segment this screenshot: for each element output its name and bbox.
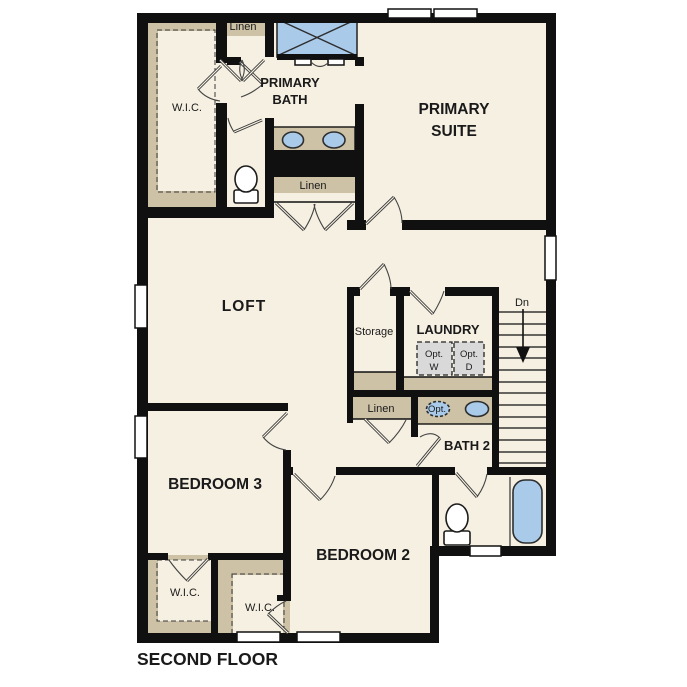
room-label-wic-bed3: W.I.C. xyxy=(170,587,200,599)
optional-sink-label: Opt. xyxy=(428,404,446,415)
room-label-bath2: BATH 2 xyxy=(444,438,490,453)
room-label-wic-bed2: W.I.C. xyxy=(245,602,275,614)
room-label: SUITE xyxy=(431,123,477,140)
window xyxy=(135,285,147,328)
page-title: SECOND FLOOR xyxy=(137,649,278,669)
window xyxy=(388,9,431,18)
window xyxy=(470,546,501,556)
room-label: PRIMARY xyxy=(419,101,491,118)
room-label-storage: Storage xyxy=(355,326,394,338)
window xyxy=(297,632,340,642)
room-label-laundry: LAUNDRY xyxy=(416,322,479,337)
room-label-wic-primary: W.I.C. xyxy=(172,102,202,114)
shower-fixture xyxy=(277,18,357,67)
optional-dryer-label: Opt. xyxy=(460,349,478,360)
room-label-linen-bath: Linen xyxy=(368,403,395,415)
toilet-fixture-bath2 xyxy=(444,504,470,545)
room-label-linen-top: Linen xyxy=(230,21,257,33)
stairs-down-label: Dn xyxy=(515,297,529,309)
room-label-loft: LOFT xyxy=(222,298,266,315)
toilet-fixture-primary xyxy=(234,166,258,203)
bathtub-fixture xyxy=(510,477,542,546)
optional-washer-label: Opt. xyxy=(425,349,443,360)
room-label-bedroom3: BEDROOM 3 xyxy=(168,476,262,493)
window xyxy=(434,9,477,18)
optional-washer-label: W xyxy=(430,362,439,373)
sink-fixture xyxy=(466,402,489,417)
window xyxy=(135,416,147,458)
window xyxy=(545,236,556,280)
optional-dryer-label: D xyxy=(466,362,473,373)
window xyxy=(237,632,280,642)
room-label: BATH xyxy=(272,92,307,107)
sink-fixture xyxy=(323,132,345,148)
room-label-linen-hall: Linen xyxy=(300,180,327,192)
room-label-bedroom2: BEDROOM 2 xyxy=(316,547,410,564)
room-label: PRIMARY xyxy=(260,75,320,90)
floor-plan-svg: PRIMARY BATH PRIMARY SUITE W.I.C. Linen … xyxy=(0,0,687,687)
floor-plan: PRIMARY BATH PRIMARY SUITE W.I.C. Linen … xyxy=(0,0,687,687)
sink-fixture xyxy=(283,132,304,148)
